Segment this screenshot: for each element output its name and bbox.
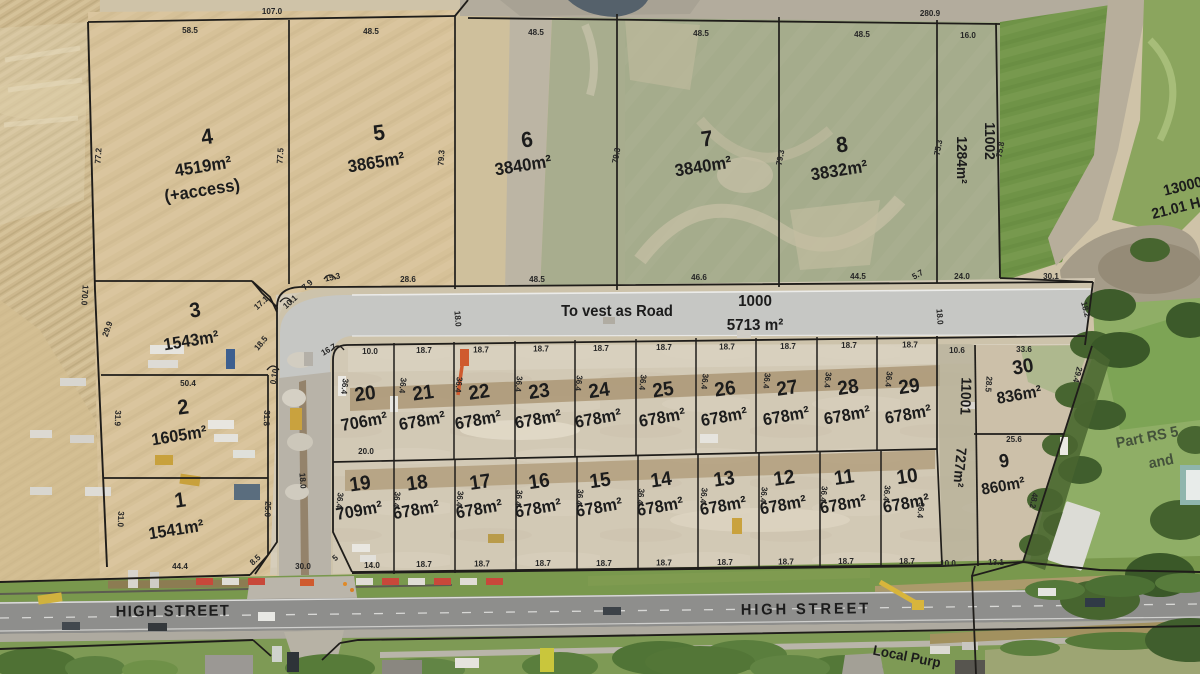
svg-text:1000: 1000 bbox=[738, 293, 772, 310]
svg-text:18.7: 18.7 bbox=[535, 558, 551, 568]
svg-text:36.4: 36.4 bbox=[758, 486, 770, 503]
svg-text:18.7: 18.7 bbox=[473, 344, 489, 354]
svg-text:25.0: 25.0 bbox=[263, 501, 274, 518]
svg-text:48.5: 48.5 bbox=[529, 274, 545, 284]
svg-text:18.7: 18.7 bbox=[416, 559, 432, 569]
svg-text:16.0: 16.0 bbox=[960, 30, 976, 40]
svg-text:13.1: 13.1 bbox=[988, 557, 1004, 567]
svg-text:107.0: 107.0 bbox=[262, 6, 283, 16]
svg-text:29: 29 bbox=[897, 374, 921, 399]
svg-text:13: 13 bbox=[712, 466, 736, 491]
svg-text:10: 10 bbox=[895, 464, 919, 489]
svg-text:727m²: 727m² bbox=[950, 447, 970, 488]
svg-text:36.4: 36.4 bbox=[391, 491, 403, 508]
svg-text:58.5: 58.5 bbox=[182, 25, 198, 35]
svg-text:27: 27 bbox=[775, 376, 799, 401]
svg-text:36.4: 36.4 bbox=[635, 488, 647, 505]
svg-text:10.0: 10.0 bbox=[940, 558, 956, 568]
svg-text:12: 12 bbox=[772, 466, 796, 491]
svg-text:36.4: 36.4 bbox=[637, 374, 649, 391]
svg-text:10.6: 10.6 bbox=[949, 345, 965, 355]
svg-text:18.7: 18.7 bbox=[474, 558, 490, 568]
svg-text:36.4: 36.4 bbox=[698, 487, 710, 504]
svg-text:36.4: 36.4 bbox=[699, 373, 711, 390]
svg-text:21: 21 bbox=[411, 380, 435, 405]
svg-text:48.5: 48.5 bbox=[854, 29, 870, 39]
svg-text:18.7: 18.7 bbox=[533, 343, 549, 353]
svg-text:20.0: 20.0 bbox=[358, 446, 374, 456]
svg-text:HIGH STREET: HIGH STREET bbox=[116, 602, 231, 620]
svg-text:36.4: 36.4 bbox=[334, 492, 346, 509]
svg-text:18.7: 18.7 bbox=[902, 339, 918, 349]
svg-text:28: 28 bbox=[836, 375, 860, 400]
svg-text:77.2: 77.2 bbox=[92, 147, 103, 164]
svg-text:36.4: 36.4 bbox=[513, 376, 525, 393]
svg-text:14.0: 14.0 bbox=[364, 560, 380, 570]
svg-text:14: 14 bbox=[649, 467, 673, 492]
svg-text:36.4: 36.4 bbox=[761, 372, 773, 389]
svg-text:36.4: 36.4 bbox=[397, 377, 409, 394]
svg-text:44.4: 44.4 bbox=[172, 561, 188, 571]
svg-text:18.0: 18.0 bbox=[297, 472, 309, 489]
svg-text:36.4: 36.4 bbox=[881, 485, 893, 502]
svg-text:22: 22 bbox=[467, 380, 491, 405]
svg-text:48.5: 48.5 bbox=[363, 26, 379, 36]
svg-text:280.9: 280.9 bbox=[920, 8, 941, 18]
svg-text:18.0: 18.0 bbox=[934, 308, 946, 325]
svg-text:18.0: 18.0 bbox=[452, 310, 464, 327]
svg-text:16: 16 bbox=[527, 469, 551, 494]
svg-text:36.4: 36.4 bbox=[574, 489, 586, 506]
svg-text:18.7: 18.7 bbox=[719, 341, 735, 351]
svg-text:44.5: 44.5 bbox=[850, 271, 866, 281]
svg-text:24.0: 24.0 bbox=[954, 271, 970, 281]
svg-text:30: 30 bbox=[1011, 354, 1036, 380]
svg-text:50.4: 50.4 bbox=[180, 378, 196, 388]
svg-text:HIGH STREET: HIGH STREET bbox=[741, 600, 871, 619]
svg-text:28.5: 28.5 bbox=[983, 376, 995, 393]
svg-text:36.4: 36.4 bbox=[453, 376, 465, 393]
svg-text:18.7: 18.7 bbox=[593, 343, 609, 353]
svg-text:79.3: 79.3 bbox=[435, 149, 446, 166]
svg-text:18.7: 18.7 bbox=[780, 341, 796, 351]
svg-text:48.5: 48.5 bbox=[528, 27, 544, 37]
svg-text:31.0: 31.0 bbox=[116, 511, 127, 528]
svg-text:19: 19 bbox=[348, 471, 372, 496]
svg-text:18.7: 18.7 bbox=[899, 556, 915, 566]
svg-text:To vest as Road: To vest as Road bbox=[561, 303, 673, 320]
svg-text:18: 18 bbox=[405, 470, 429, 495]
svg-text:11: 11 bbox=[833, 465, 856, 490]
svg-text:18.7: 18.7 bbox=[838, 556, 854, 566]
svg-text:5713 m²: 5713 m² bbox=[727, 317, 784, 334]
svg-text:26: 26 bbox=[713, 376, 737, 401]
svg-text:31.9: 31.9 bbox=[113, 410, 124, 427]
svg-text:46.6: 46.6 bbox=[691, 272, 707, 282]
svg-text:10.0: 10.0 bbox=[362, 346, 378, 356]
svg-text:77.5: 77.5 bbox=[274, 147, 285, 164]
svg-text:31.8: 31.8 bbox=[262, 410, 273, 427]
svg-text:36.4: 36.4 bbox=[883, 371, 895, 388]
svg-text:18.7: 18.7 bbox=[416, 345, 432, 355]
svg-text:36.4: 36.4 bbox=[513, 490, 525, 507]
svg-text:24: 24 bbox=[587, 378, 611, 403]
svg-text:36.4: 36.4 bbox=[454, 490, 466, 507]
svg-text:1284m²: 1284m² bbox=[954, 136, 970, 184]
svg-text:18.7: 18.7 bbox=[717, 557, 733, 567]
svg-text:18.7: 18.7 bbox=[596, 558, 612, 568]
svg-text:48.5: 48.5 bbox=[693, 28, 709, 38]
svg-text:20: 20 bbox=[353, 381, 377, 406]
svg-text:28.6: 28.6 bbox=[400, 274, 416, 284]
svg-text:36.4: 36.4 bbox=[573, 375, 585, 392]
svg-text:36.4: 36.4 bbox=[339, 378, 351, 395]
svg-text:30.1: 30.1 bbox=[1043, 271, 1059, 281]
svg-text:18.7: 18.7 bbox=[778, 556, 794, 566]
svg-text:36.4: 36.4 bbox=[822, 372, 834, 389]
svg-text:36.4: 36.4 bbox=[818, 486, 830, 503]
svg-text:170.0: 170.0 bbox=[79, 285, 91, 306]
svg-text:25.6: 25.6 bbox=[1006, 434, 1022, 444]
svg-text:36.4: 36.4 bbox=[915, 502, 927, 519]
svg-text:30.0: 30.0 bbox=[295, 561, 311, 571]
svg-text:23: 23 bbox=[527, 379, 551, 404]
svg-text:18.7: 18.7 bbox=[656, 342, 672, 352]
svg-text:18.7: 18.7 bbox=[656, 557, 672, 567]
svg-text:17: 17 bbox=[468, 470, 492, 495]
svg-text:33.6: 33.6 bbox=[1016, 344, 1032, 354]
svg-text:18.7: 18.7 bbox=[841, 340, 857, 350]
svg-text:11001: 11001 bbox=[957, 377, 975, 415]
svg-text:15: 15 bbox=[588, 468, 612, 493]
svg-text:25: 25 bbox=[651, 377, 675, 402]
